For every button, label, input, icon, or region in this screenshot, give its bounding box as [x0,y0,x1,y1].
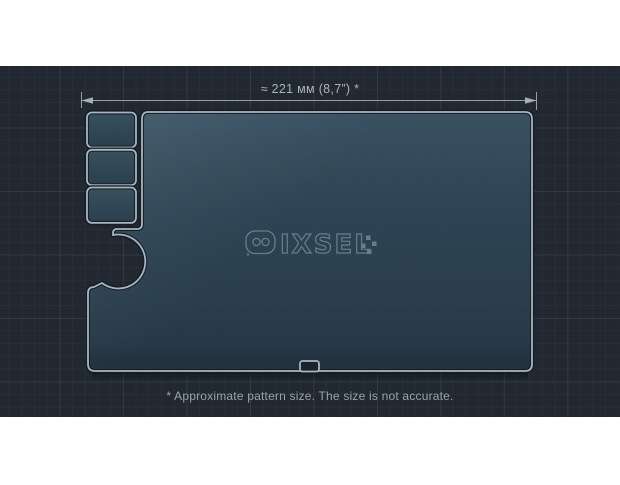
product-image: IXSEL ≈ 221 мм (8,7”) * * Approximate pa… [0,0,620,485]
watermark-text: IXSEL [280,230,373,260]
dimension-label: ≈ 221 мм (8,7”) * [0,82,620,96]
button-cutout-1 [87,113,136,148]
piece-shadow [92,373,528,382]
bottom-notch-cutout [300,361,319,372]
button-cutout-2 [87,150,136,185]
pattern-drawing: IXSEL [0,0,620,485]
arrow-right-icon [525,97,537,104]
button-cutout-3 [87,188,136,223]
footnote-text: * Approximate pattern size. The size is … [0,389,620,403]
arrow-left-icon [82,97,94,104]
